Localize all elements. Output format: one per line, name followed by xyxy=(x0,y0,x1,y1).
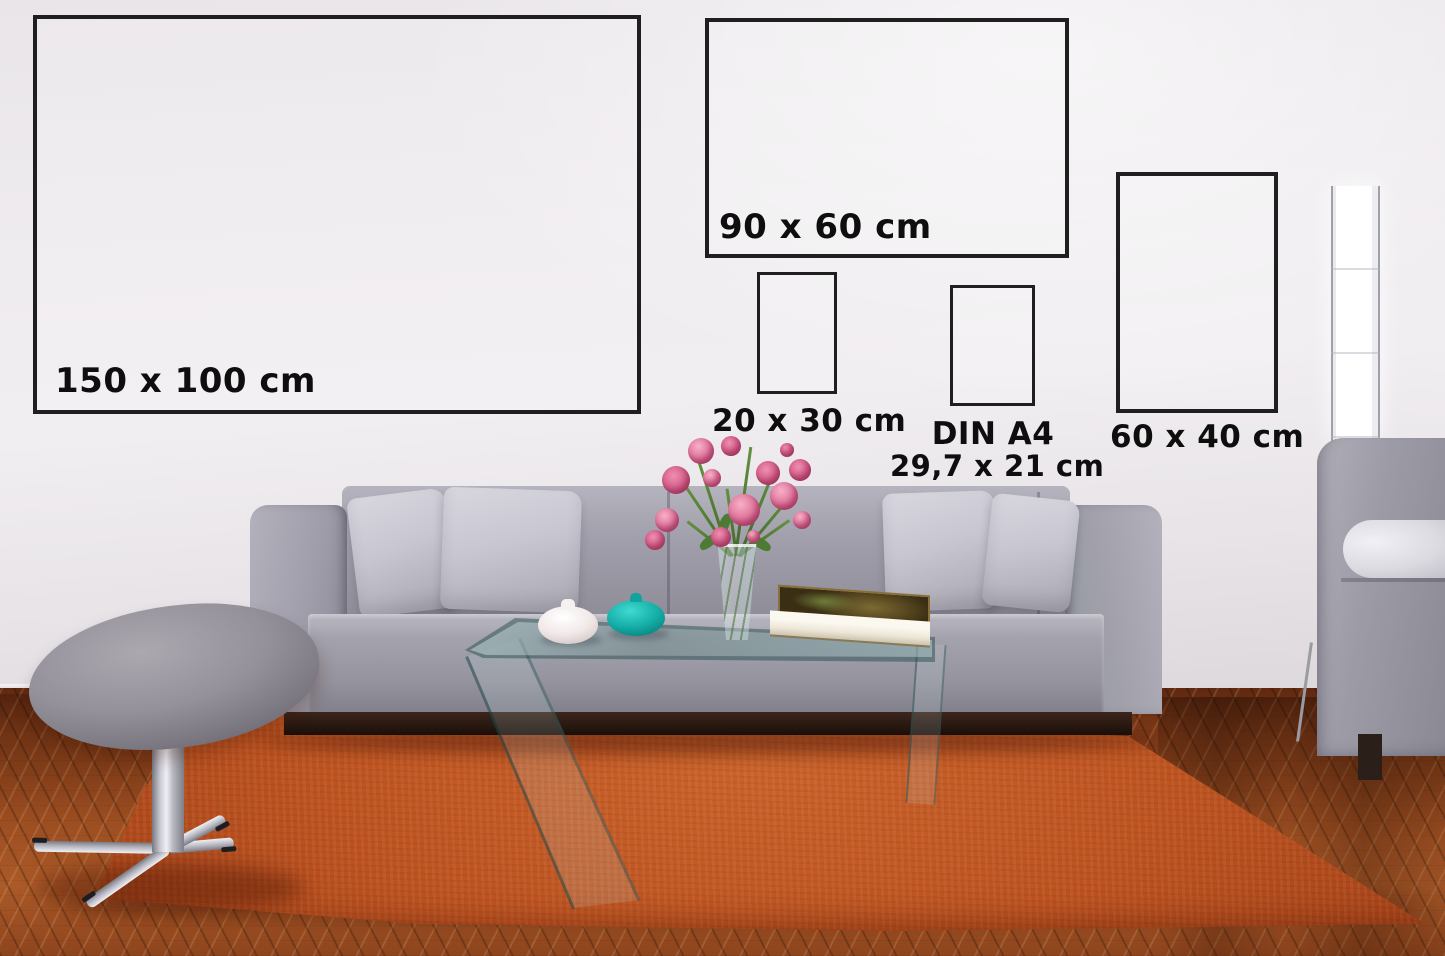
stool-shadow xyxy=(36,864,304,912)
size-frame-20x30 xyxy=(757,272,837,394)
stool-seat xyxy=(20,589,327,766)
size-label-din-a4: DIN A4 xyxy=(912,416,1074,452)
flower-bloom xyxy=(688,438,714,464)
white-vase xyxy=(538,606,598,644)
flower-bloom xyxy=(662,466,690,494)
sofa-pillow xyxy=(440,487,582,614)
size-frame-60x40 xyxy=(1116,172,1278,413)
teal-vase xyxy=(607,600,665,636)
size-frame-150x100 xyxy=(33,15,641,414)
flower-bloom xyxy=(711,527,731,547)
size-label-20x30: 20 x 30 cm xyxy=(712,403,888,439)
size-label-60x40: 60 x 40 cm xyxy=(1110,419,1288,455)
stool-base-leg xyxy=(34,841,168,854)
sofa-pillow xyxy=(981,493,1080,614)
side-sofa-body xyxy=(1317,438,1445,756)
flower-bloom xyxy=(645,530,665,550)
floor-lamp xyxy=(1331,186,1380,442)
stool-pedestal xyxy=(152,740,184,852)
size-frame-din-a4 xyxy=(950,285,1035,406)
side-sofa-seam xyxy=(1341,578,1445,582)
stool xyxy=(18,598,330,938)
glass-coffee-table xyxy=(455,608,940,918)
flower-bloom xyxy=(793,511,811,529)
flower-bloom xyxy=(789,459,811,481)
size-label-din-a4-dimensions: 29,7 x 21 cm xyxy=(890,449,1100,483)
flower-bloom xyxy=(721,436,741,456)
book xyxy=(770,590,936,648)
size-label-90x60: 90 x 60 cm xyxy=(719,207,932,247)
side-sofa xyxy=(1317,438,1445,780)
side-sofa-leg xyxy=(1358,734,1382,780)
flower-bloom xyxy=(756,461,780,485)
size-label-150x100: 150 x 100 cm xyxy=(55,361,316,401)
flower-bloom xyxy=(728,494,760,526)
flower-bloom xyxy=(770,482,798,510)
flower-bud xyxy=(747,530,760,543)
flower-bloom xyxy=(703,469,721,487)
bolster-pillow xyxy=(1343,520,1445,578)
flower-bloom xyxy=(655,508,679,532)
living-room-size-guide: 150 x 100 cm 90 x 60 cm 20 x 30 cm DIN A… xyxy=(0,0,1445,956)
flower-bud xyxy=(780,443,794,457)
